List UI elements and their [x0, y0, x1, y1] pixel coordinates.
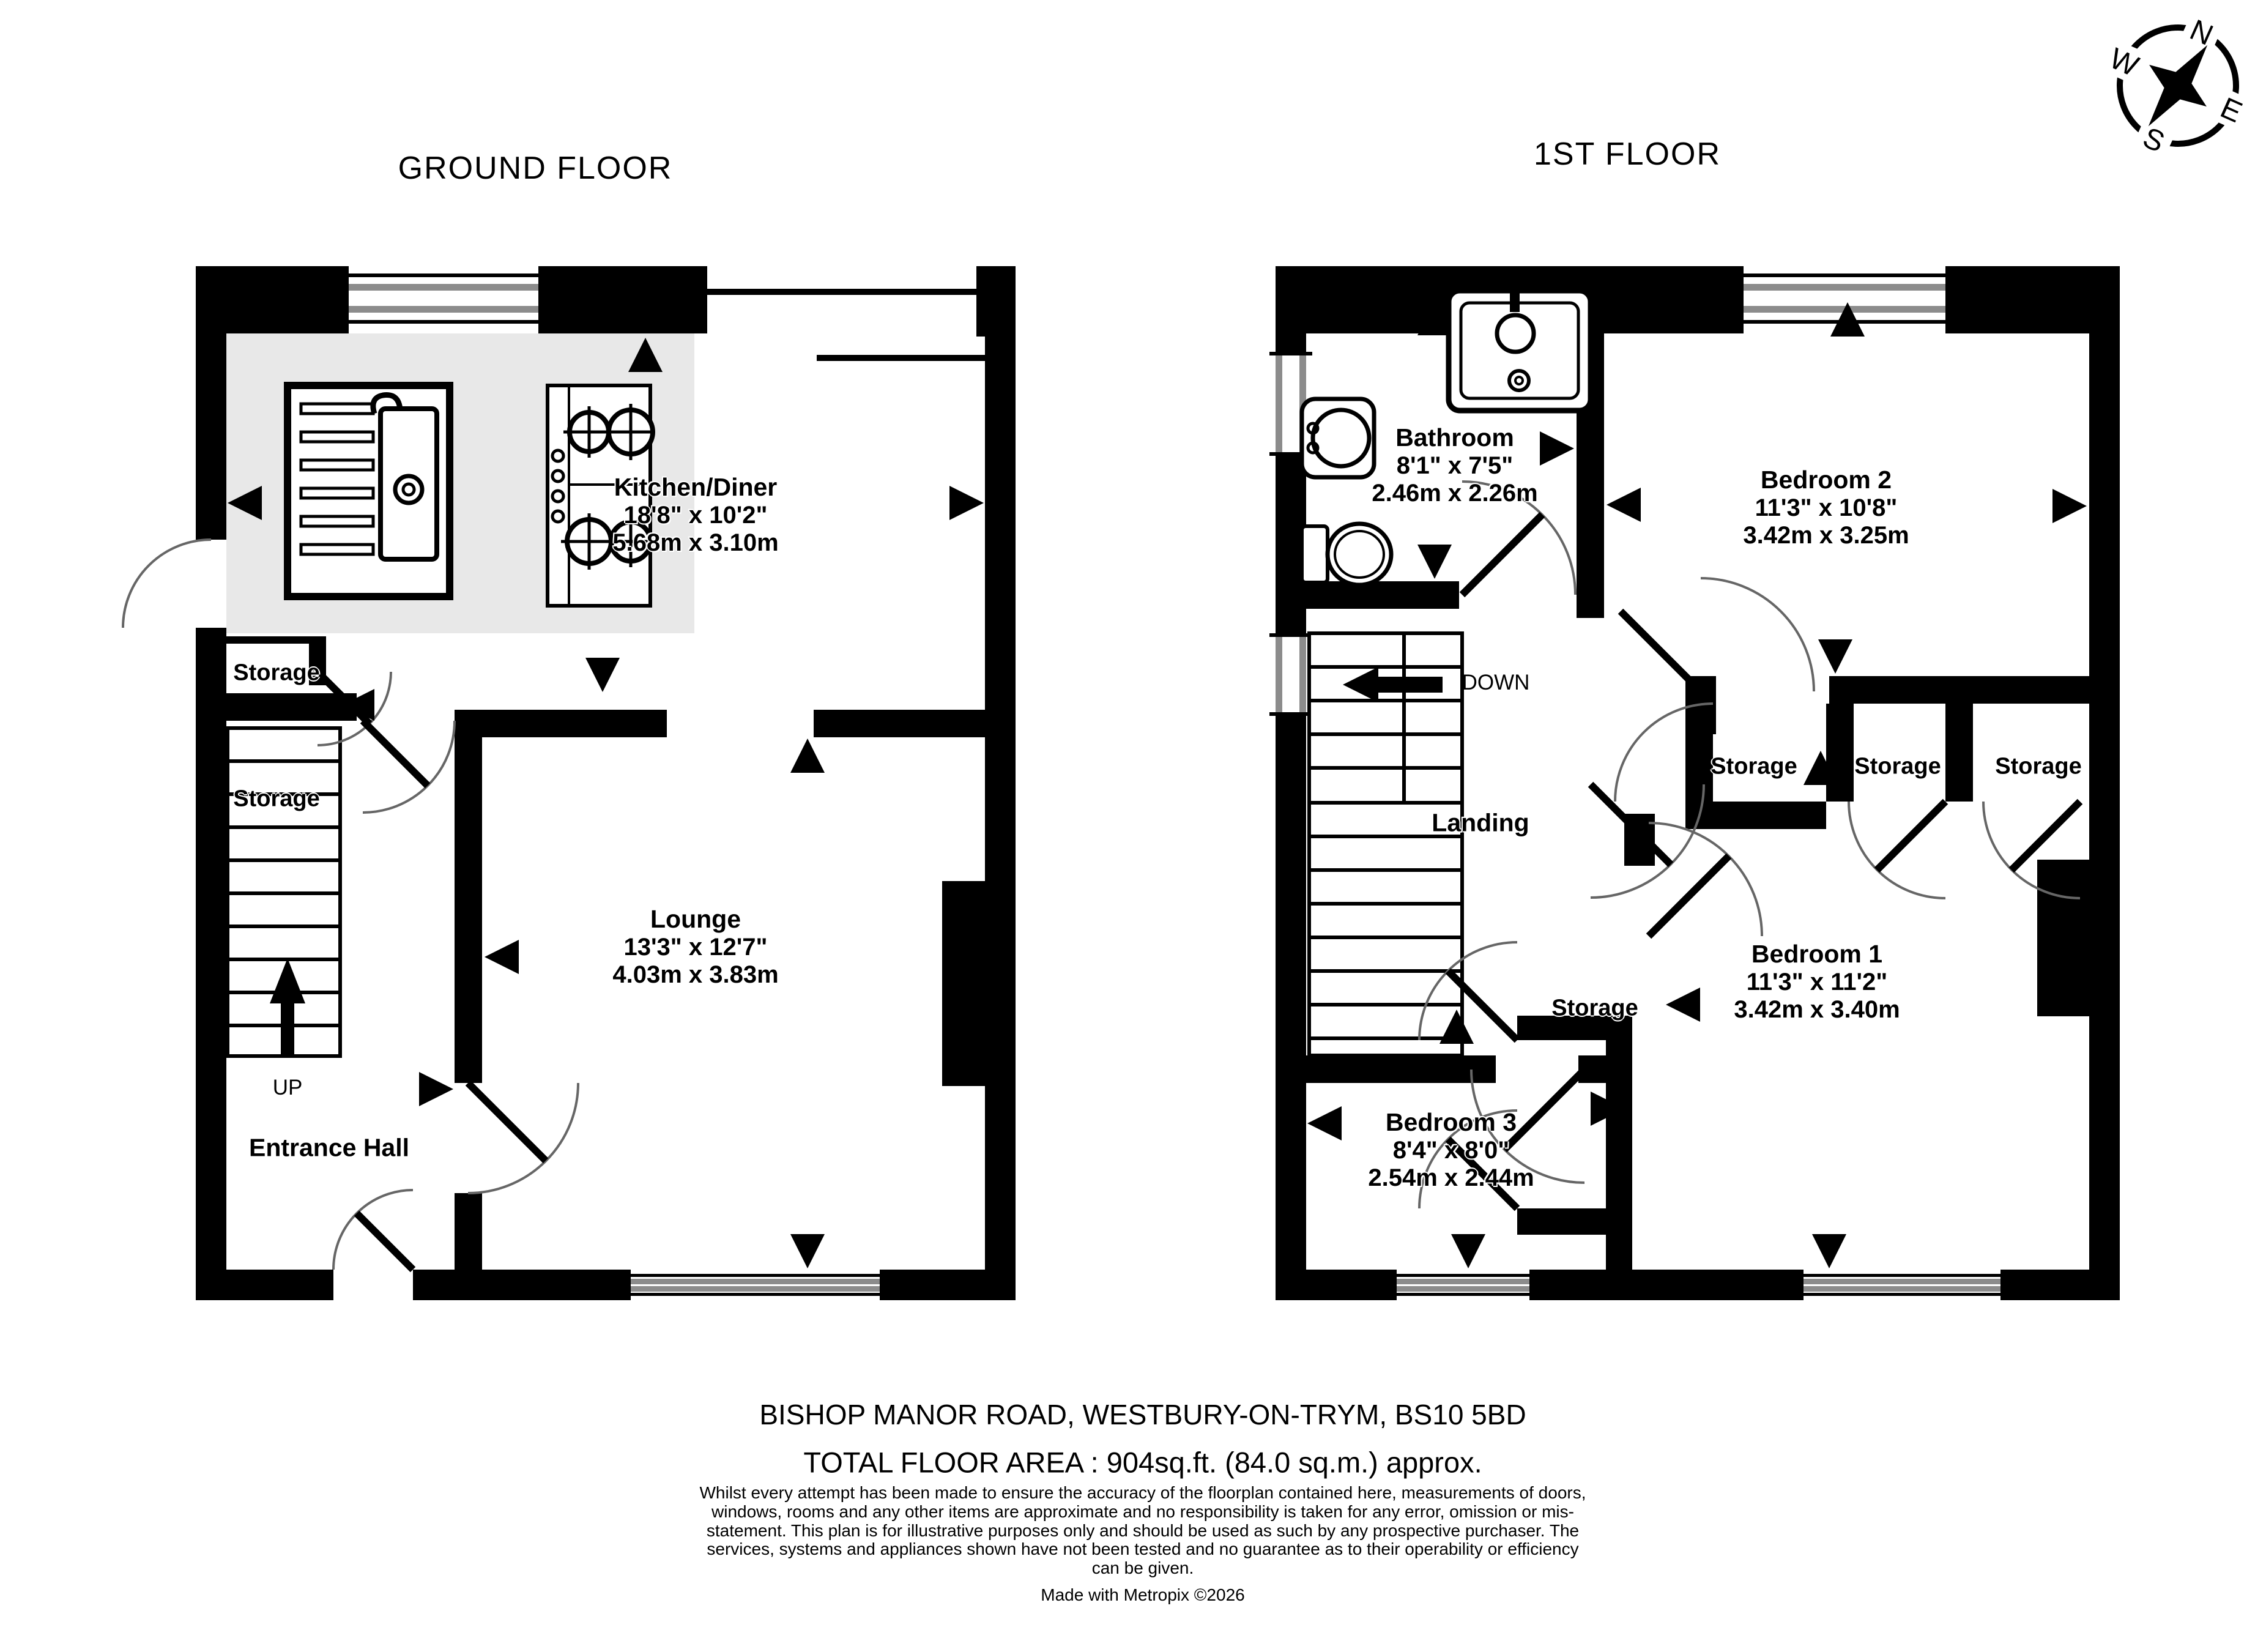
window-lounge	[631, 1273, 880, 1297]
room-label-entrance-hall: Entrance Hall	[249, 1134, 409, 1163]
total-floor-area: TOTAL FLOOR AREA : 904sq.ft. (84.0 sq.m.…	[803, 1446, 1482, 1479]
ground-floor-title: GROUND FLOOR	[398, 150, 673, 187]
window-kitchen	[349, 272, 538, 327]
window-bedroom3	[1397, 1273, 1529, 1297]
storage-label-ff-2: Storage	[1854, 754, 1941, 780]
storage-label-ff-3: Storage	[1995, 754, 2081, 780]
first-floor-title: 1ST FLOOR	[1534, 136, 1721, 173]
toilet-icon	[1302, 524, 1391, 585]
stairs-ff	[1309, 633, 1462, 1055]
room-label-bathroom: Bathroom 8'1" x 7'5" 2.46m x 2.26m	[1372, 423, 1537, 508]
room-label-landing: Landing	[1432, 809, 1529, 838]
room-label-lounge: Lounge 13'3" x 12'7" 4.03m x 3.83m	[612, 905, 778, 989]
ff-doors	[1419, 482, 2080, 1208]
stairs-down-label: DOWN	[1462, 671, 1530, 695]
window-bedroom1	[1804, 1273, 2000, 1297]
disclaimer-text: Whilst every attempt has been made to en…	[699, 1484, 1586, 1578]
floorplan-page: N S W E GROUND FLOOR 1ST FLOOR Kitchen/D…	[0, 0, 2266, 1652]
svg-text:W: W	[2104, 42, 2144, 83]
basin-icon	[1302, 399, 1374, 477]
chimney-breast-ff	[2037, 860, 2089, 1016]
compass-icon: N S W E	[2078, 0, 2266, 186]
room-label-bedroom3: Bedroom 3 8'4" x 8'0" 2.54m x 2.44m	[1368, 1108, 1534, 1192]
room-label-kitchen-diner: Kitchen/Diner 18'8" x 10'2" 5.68m x 3.10…	[612, 473, 778, 557]
bathtub-icon	[1449, 283, 1591, 411]
property-address: BISHOP MANOR ROAD, WESTBURY-ON-TRYM, BS1…	[759, 1398, 1526, 1431]
stairs-up-label: UP	[273, 1076, 303, 1100]
storage-label-ff-1: Storage	[1711, 754, 1797, 780]
kitchen-sink-icon	[288, 385, 450, 597]
room-label-bedroom1: Bedroom 1 11'3" x 11'2" 3.42m x 3.40m	[1734, 940, 1900, 1024]
storage-label-ff-small: Storage	[1551, 995, 1638, 1022]
storage-label-gf-understairs: Storage	[233, 786, 319, 813]
window-stairs	[1269, 633, 1312, 716]
storage-label-gf-upper: Storage	[233, 660, 319, 686]
room-label-bedroom2: Bedroom 2 11'3" x 10'8" 3.42m x 3.25m	[1743, 466, 1909, 550]
chimney-breast-gf	[942, 881, 985, 1086]
credit-text: Made with Metropix ©2026	[1041, 1585, 1244, 1605]
